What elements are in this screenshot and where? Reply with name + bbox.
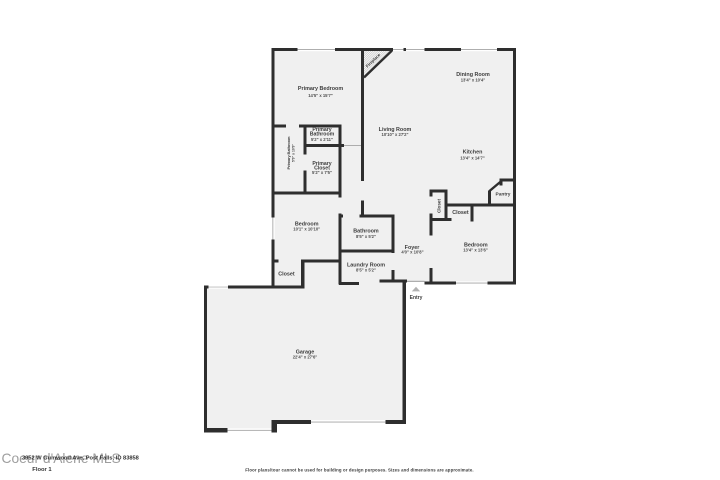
svg-text:8'5" x 5'2": 8'5" x 5'2" — [356, 234, 376, 239]
svg-text:22'4" x 27'6": 22'4" x 27'6" — [293, 354, 318, 359]
svg-text:13'4" x 14'7": 13'4" x 14'7" — [460, 156, 485, 161]
svg-text:5'9" x 10'9": 5'9" x 10'9" — [291, 144, 295, 162]
svg-text:Closet: Closet — [452, 210, 469, 216]
svg-text:Floor 1: Floor 1 — [32, 467, 52, 473]
svg-text:10'1" x 10'10": 10'1" x 10'10" — [293, 226, 320, 231]
svg-text:4'0" x 10'8": 4'0" x 10'8" — [401, 250, 423, 255]
svg-text:Closet: Closet — [278, 272, 295, 278]
svg-text:13'4" x 10'4": 13'4" x 10'4" — [461, 77, 486, 82]
svg-text:Primary Bedroom: Primary Bedroom — [298, 86, 343, 92]
svg-text:5'2" x 7'5": 5'2" x 7'5" — [312, 170, 332, 175]
svg-text:3952 W Gumwood Ave, Post Falls: 3952 W Gumwood Ave, Post Falls, ID 83858 — [22, 456, 139, 462]
svg-text:Entry: Entry — [410, 295, 423, 301]
svg-text:Floor plans/tour cannot be use: Floor plans/tour cannot be used for buil… — [245, 468, 473, 473]
svg-text:Closet: Closet — [437, 199, 442, 214]
svg-text:Primary Bathroom: Primary Bathroom — [286, 136, 291, 170]
svg-text:14'5" x 15'7": 14'5" x 15'7" — [308, 93, 333, 98]
svg-text:Pantry: Pantry — [496, 192, 511, 198]
svg-text:10'10" x 27'2": 10'10" x 27'2" — [382, 132, 409, 137]
svg-text:5'2" x 2'11": 5'2" x 2'11" — [311, 137, 333, 142]
svg-text:8'5" x 5'2": 8'5" x 5'2" — [356, 268, 376, 273]
svg-text:13'4" x 13'6": 13'4" x 13'6" — [463, 247, 488, 252]
